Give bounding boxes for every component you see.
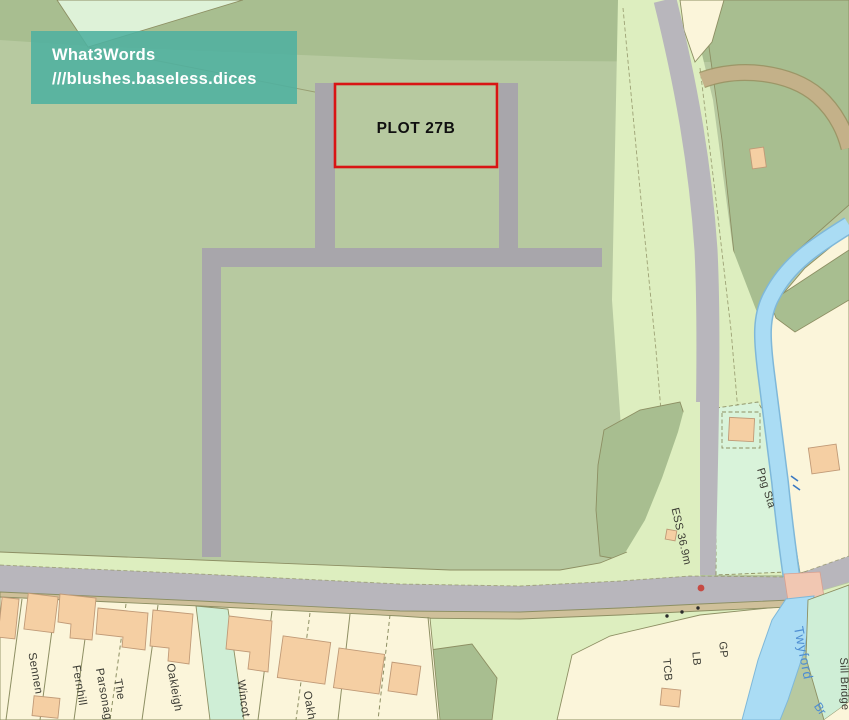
site-map: PLOT 27B Sennen Fernhill The Parsonage O…	[0, 0, 849, 720]
label-tcb: TCB	[660, 658, 674, 682]
w3w-address: ///blushes.baseless.dices	[52, 67, 287, 91]
plot-27b-label: PLOT 27B	[377, 120, 456, 137]
w3w-badge: What3Words ///blushes.baseless.dices	[31, 31, 297, 104]
label-gp: GP	[716, 641, 729, 658]
w3w-title: What3Words	[52, 43, 287, 67]
junction-marker	[698, 585, 705, 592]
map-screenshot: PLOT 27B Sennen Fernhill The Parsonage O…	[0, 0, 849, 720]
label-lb: LB	[689, 651, 702, 666]
label-sill-bridge: Sill Bridge	[837, 657, 849, 710]
